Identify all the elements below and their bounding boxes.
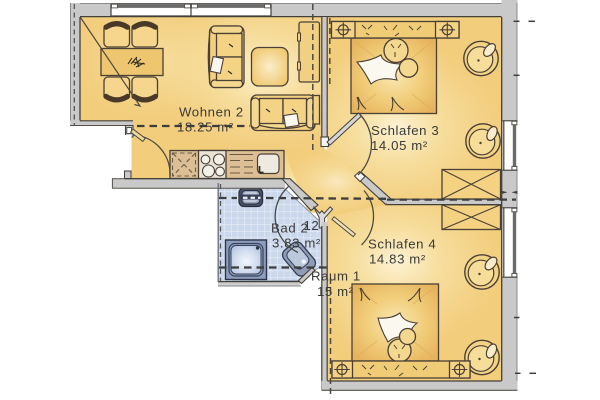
svg-text:15 m²: 15 m² bbox=[317, 284, 354, 299]
svg-text:Wohnen 2: Wohnen 2 bbox=[179, 105, 244, 120]
svg-text:14.83 m²: 14.83 m² bbox=[369, 252, 426, 267]
svg-text:Raum 1: Raum 1 bbox=[311, 269, 361, 284]
svg-text:3.83 m²: 3.83 m² bbox=[272, 236, 321, 251]
svg-text:14.05 m²: 14.05 m² bbox=[371, 138, 428, 153]
svg-text:Schlafen 3: Schlafen 3 bbox=[371, 123, 439, 138]
svg-text:12: 12 bbox=[304, 218, 320, 233]
svg-text:18.25 m²: 18.25 m² bbox=[177, 120, 234, 135]
svg-text:Schlafen 4: Schlafen 4 bbox=[368, 237, 436, 252]
